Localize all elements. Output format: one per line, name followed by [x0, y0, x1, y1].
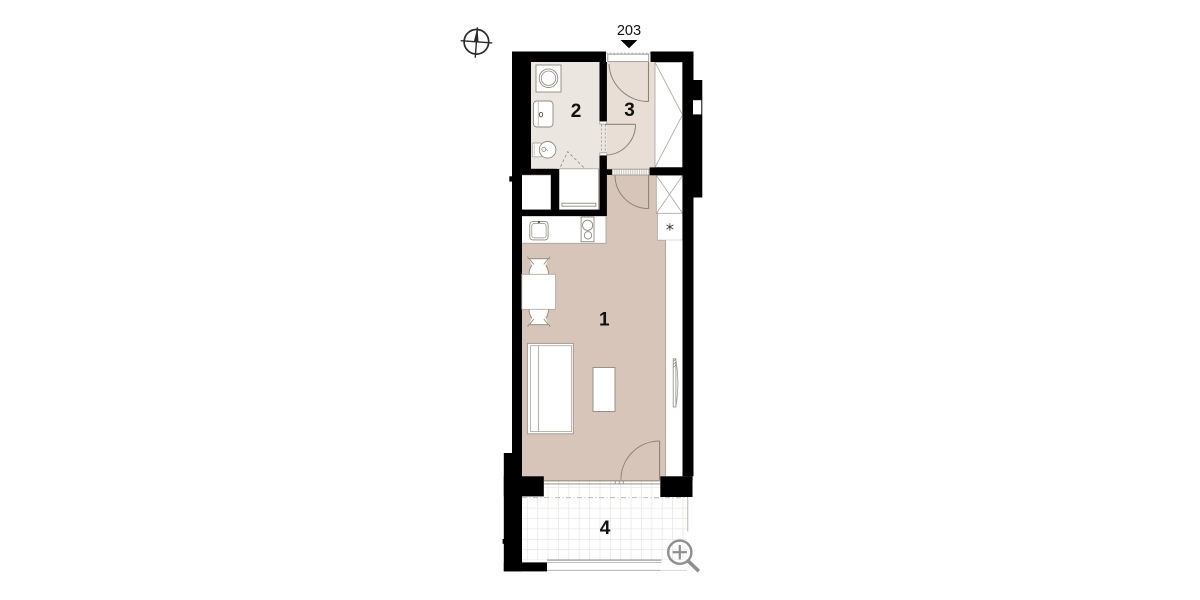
svg-text:3: 3 — [624, 100, 635, 121]
svg-text:1: 1 — [599, 309, 610, 330]
svg-text:2: 2 — [571, 101, 582, 122]
svg-text:4: 4 — [600, 518, 611, 539]
svg-text:203: 203 — [617, 23, 641, 39]
